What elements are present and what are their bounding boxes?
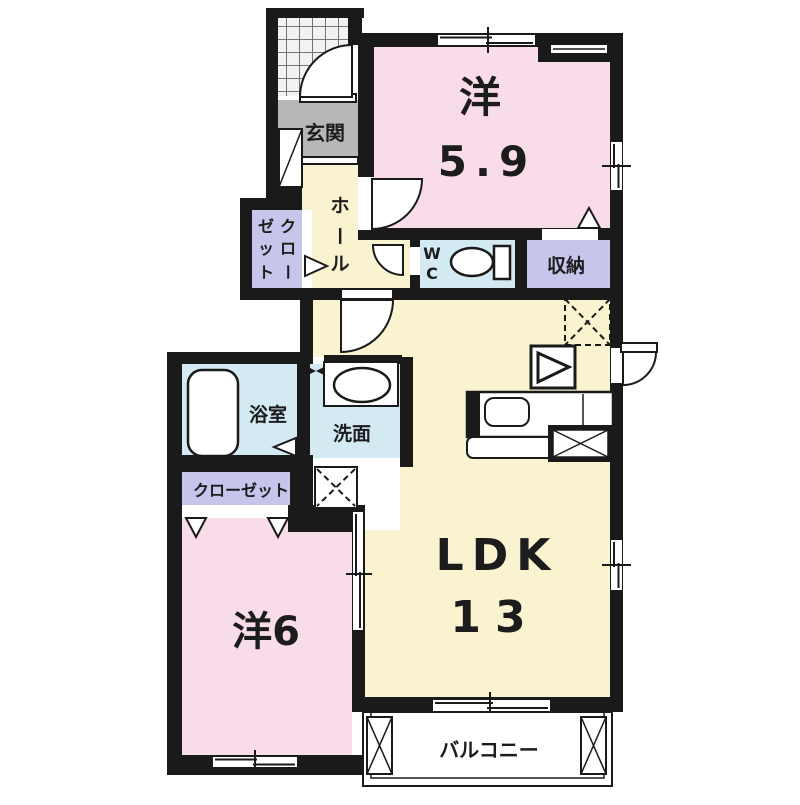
hall-label-char1: ホ [330,195,349,217]
hall-label-char3: ル [330,253,349,275]
closet-upper-char1: ク [280,217,296,236]
wall-left-outer [167,352,182,775]
west6-ldk-sliding-door [353,512,363,630]
kitchen-counter-end [467,392,480,437]
wc-label-w: W [423,244,441,263]
ldk-size-label: 13 [450,592,539,643]
storage-label: 収納 [547,254,585,277]
wall-bath-wash [297,364,310,455]
wall-washroom-right [400,357,413,467]
back-door-swing [623,352,656,385]
closet-upper-char2: ロ [280,239,296,258]
kitchen-sink [485,398,529,426]
closet-upper-char6: ト [258,263,274,282]
back-door-leaf [621,343,657,352]
washroom-label: 洗面 [333,422,371,445]
closet-upper-char4: ゼ [258,217,274,236]
toilet-tank [494,246,510,279]
wall-wc-storage [515,238,527,288]
closet-upper-door-gap [302,210,312,288]
storage-door-opening [542,229,598,240]
floor-plan-page: 玄関 ホ ー ル ク ロ ー ゼ ッ ト 洋 5.9 W C 収納 浴室 洗面 … [0,0,800,800]
ldk-mid-floor [400,465,610,530]
wall-wc-left-top [410,228,420,247]
ldk-balcony-window [433,700,550,712]
kitchen-lower-counter [467,437,553,458]
floor-plan-drawing: 玄関 ホ ー ル ク ロ ー ゼ ッ ト 洋 5.9 W C 収納 浴室 洗面 … [0,0,800,800]
closet-lower-label: クローゼット [193,481,289,500]
washbasin-bowl [334,368,390,402]
western59-kanji-label: 洋 [459,73,501,122]
wall-closet-upper-left [240,198,252,300]
wall-bathroom-top [167,352,313,364]
entrance-step [302,157,358,164]
western6-label: 洋6 [232,609,300,655]
ldk-label: LDK [436,530,559,581]
western59-size-label: 5.9 [438,137,536,186]
wall-porch-left [266,8,278,190]
balcony-label: バルコニー [439,738,539,762]
hall-label-char2: ー [328,226,350,245]
closet-upper-char5: ッ [258,239,274,258]
bathtub [188,370,238,456]
wall-wc-left-bottom [410,275,420,300]
wall-entrance-west59 [358,43,374,179]
wc-label-c: C [426,264,438,283]
toilet-bowl [451,248,493,276]
bathroom-label: 浴室 [249,403,287,426]
wall-porch-right [348,8,362,45]
hall-ldk-door-leaf [341,289,393,299]
west6-closet-opening [183,506,288,518]
back-door-opening [611,348,622,383]
entrance-label: 玄関 [305,121,345,145]
closet-upper-char3: ー [278,264,297,280]
